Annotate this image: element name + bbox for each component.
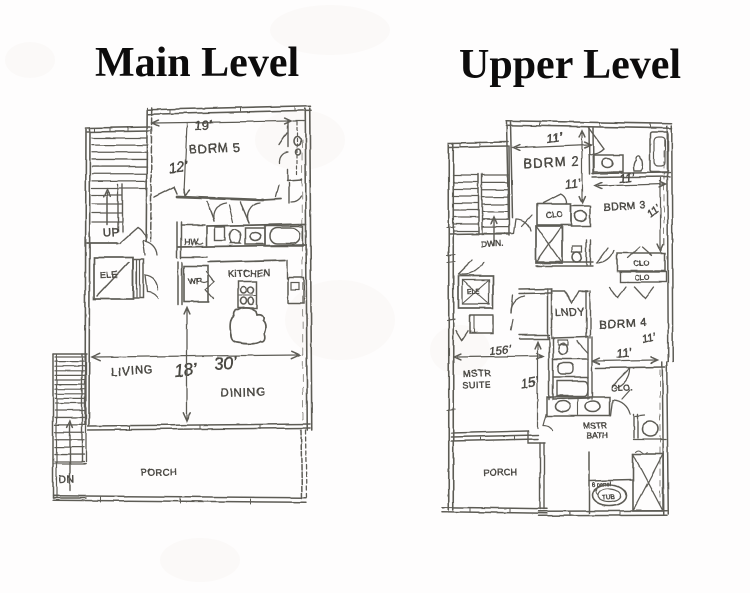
svg-text:BATH: BATH: [586, 430, 608, 441]
svg-text:KiTCHEN: KiTCHEN: [228, 268, 271, 280]
svg-text:LNDY: LNDY: [555, 306, 585, 319]
svg-text:18’: 18’: [173, 360, 198, 381]
svg-text:DWN.: DWN.: [481, 238, 504, 249]
svg-text:MSTR: MSTR: [463, 368, 492, 380]
svg-text:UP: UP: [103, 227, 121, 240]
svg-text:12’: 12’: [168, 158, 189, 176]
svg-text:CLO: CLO: [635, 274, 650, 282]
svg-text:ELE: ELE: [467, 289, 481, 296]
svg-text:MSTR: MSTR: [583, 420, 607, 431]
svg-text:156’: 156’: [489, 344, 512, 358]
svg-text:PORCH: PORCH: [141, 467, 178, 479]
svg-text:BDRM 5: BDRM 5: [188, 140, 241, 157]
svg-text:BDRM 4: BDRM 4: [598, 315, 648, 332]
svg-text:BDRM 2: BDRM 2: [523, 153, 580, 171]
svg-text:Upper Level: Upper Level: [459, 42, 681, 88]
svg-text:DINING: DINING: [221, 386, 266, 400]
svg-text:SUITE: SUITE: [462, 380, 491, 391]
svg-text:DN: DN: [59, 473, 76, 486]
svg-text:11’: 11’: [545, 130, 562, 146]
svg-text:11’: 11’: [564, 176, 581, 192]
svg-text:CLO: CLO: [634, 258, 650, 268]
svg-text:CLO.: CLO.: [611, 382, 634, 393]
svg-text:11’: 11’: [618, 170, 635, 186]
svg-text:19’: 19’: [194, 117, 213, 133]
svg-text:LIVING: LIVING: [110, 364, 153, 379]
svg-text:11’: 11’: [641, 331, 658, 346]
svg-text:11’: 11’: [615, 345, 632, 361]
svg-text:ELE: ELE: [100, 269, 118, 280]
svg-text:BDRM 3: BDRM 3: [603, 199, 646, 214]
svg-text:Main Level: Main Level: [95, 40, 299, 86]
svg-text:PORCH: PORCH: [484, 467, 518, 478]
svg-text:CLO: CLO: [546, 210, 563, 220]
svg-text:30’: 30’: [213, 353, 238, 374]
